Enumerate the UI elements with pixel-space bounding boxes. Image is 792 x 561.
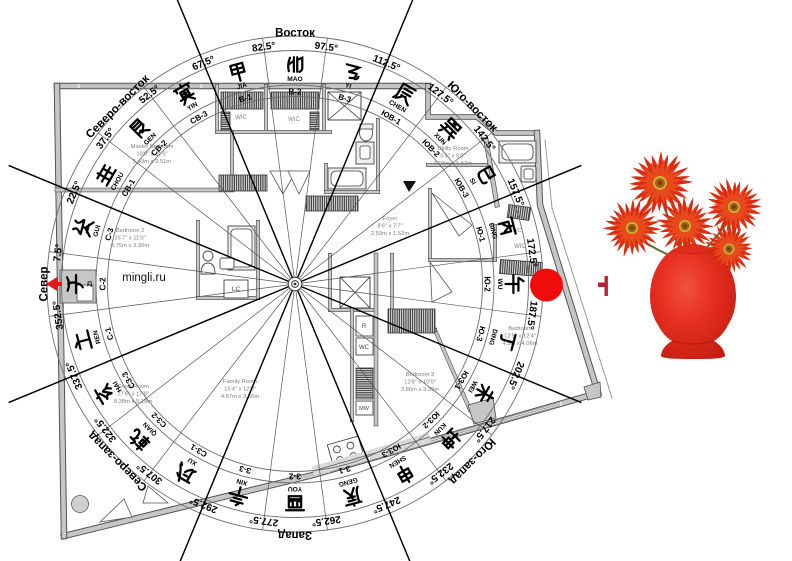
svg-text:Запад: Запад bbox=[277, 529, 312, 541]
svg-text:WIC: WIC bbox=[235, 115, 247, 121]
svg-text:В-2: В-2 bbox=[289, 87, 302, 96]
svg-text:Bedroom 215'7" x 11'0"4.75m x: Bedroom 215'7" x 11'0"4.75m x 3.35m bbox=[111, 228, 150, 249]
svg-text:YOU: YOU bbox=[288, 485, 303, 492]
svg-text:Family Room15'4" x 12'0"4.67m: Family Room15'4" x 12'0"4.67m x 3.66m bbox=[221, 379, 260, 400]
svg-text:С-2: С-2 bbox=[98, 277, 107, 290]
svg-text:Восток: Восток bbox=[275, 28, 315, 40]
svg-text:WU: WU bbox=[496, 279, 503, 290]
svg-text:WIC: WIC bbox=[514, 244, 526, 250]
svg-text:WIC: WIC bbox=[288, 117, 300, 123]
svg-text:ZI: ZI bbox=[87, 281, 94, 287]
svg-text:7.5°: 7.5° bbox=[52, 243, 65, 262]
svg-text:З-2: З-2 bbox=[288, 472, 301, 481]
svg-text:R: R bbox=[362, 324, 367, 330]
svg-text:Ю-2: Ю-2 bbox=[483, 276, 492, 292]
svg-text:MAO: MAO bbox=[287, 76, 302, 83]
svg-text:Bedroom 312'8" x 10'0"3.86m x: Bedroom 312'8" x 10'0"3.86m x 3.35m bbox=[401, 372, 440, 393]
svg-text:WC: WC bbox=[359, 345, 370, 351]
svg-text:mingli.ru: mingli.ru bbox=[122, 272, 165, 284]
svg-text:MW: MW bbox=[359, 406, 370, 412]
